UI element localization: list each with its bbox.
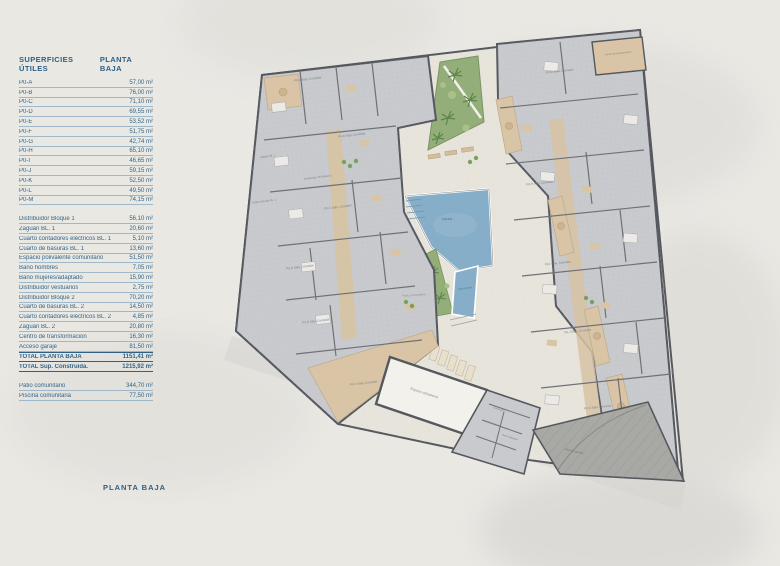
table-row: Patio comunitario344,70 m² [19,381,153,391]
transformer-room [592,37,646,75]
row-value: 14,50 m² [125,304,153,311]
row-value: 70,20 m² [125,295,153,302]
row-value: 65,10 m² [125,148,153,155]
table-row: Centro de transformación16,30 m² [19,332,153,342]
row-value: 344,70 m² [122,383,153,390]
table-row: Cuarto contadores eléctricos BL. 15,10 m… [19,234,153,244]
table-row: TOTAL Sup. Construida.1215,92 m² [19,362,153,372]
row-label: Centro de transformación [19,334,87,341]
row-value: 1215,92 m² [118,364,153,371]
row-value: 42,74 m² [125,139,153,146]
row-label: TOTAL Sup. Construida. [19,364,88,371]
row-label: Zaguán BL. 1 [19,226,55,233]
row-value: 74,15 m² [125,197,153,204]
row-value: 59,15 m² [125,168,153,175]
table-row: P0-M74,15 m² [19,196,153,206]
row-label: Cuarto contadores eléctricos BL. 1 [19,236,111,243]
row-label: Patio comunitario [19,383,65,390]
row-label: Distribuidor vestuarios [19,285,78,292]
row-value: 1151,41 m² [119,354,153,361]
row-value: 57,00 m² [125,80,153,87]
row-value: 46,65 m² [125,158,153,165]
row-label: P0-I [19,158,30,165]
surface-table-panel: SUPERFICIES ÚTILES PLANTA BAJA P0-A57,00… [19,55,153,401]
table-row: Acceso garaje81,50 m² [19,342,153,352]
table-row: Zaguán BL. 120,60 m² [19,224,153,234]
row-label: P0-A [19,80,32,87]
row-value: 15,90 m² [125,275,153,282]
row-label: TOTAL PLANTA BAJA [19,354,82,361]
table-row: Distribuidor Bloque 156,10 m² [19,214,153,224]
row-value: 5,10 m² [129,236,153,243]
plan-label: Piscina [442,217,453,222]
unit-rows-section: P0-A57,00 m²P0-B76,00 m²P0-C71,10 m²P0-D… [19,78,153,205]
plan-sheet: P0-A Sala. ComedorP0-B Sala. ComedorP0-C… [0,0,780,566]
row-value: 49,50 m² [125,188,153,195]
row-label: P0-D [19,109,33,116]
table-row: P0-E53,52 m² [19,117,153,127]
row-value: 81,50 m² [125,344,153,351]
extra-rows-section: Patio comunitario344,70 m²Piscina comuni… [19,381,153,401]
table-row: Distribuidor Bloque 270,20 m² [19,293,153,303]
row-label: Espacio polivalente comunitario [19,255,103,262]
common-rows-section: Distribuidor Bloque 156,10 m²Zaguán BL. … [19,214,153,351]
table-row: Cuarto de basuras BL. 214,50 m² [19,303,153,313]
table-row: P0-B76,00 m² [19,88,153,98]
row-value: 52,50 m² [125,178,153,185]
row-label: Zaguán BL. 2 [19,324,55,331]
row-label: Acceso garaje [19,344,57,351]
row-label: P0-L [19,188,32,195]
row-label: P0-H [19,148,33,155]
table-row: P0-G42,74 m² [19,137,153,147]
row-value: 77,50 m² [125,393,153,400]
row-label: P0-C [19,99,33,106]
row-label: P0-E [19,119,32,126]
row-label: P0-J [19,168,31,175]
row-value: 13,60 m² [125,246,153,253]
row-value: 4,85 m² [129,314,153,321]
table-row: P0-C71,10 m² [19,98,153,108]
sheet-title: PLANTA BAJA [103,483,166,492]
table-row: P0-I46,65 m² [19,156,153,166]
row-value: 7,05 m² [129,265,153,272]
row-value: 20,80 m² [125,324,153,331]
table-row: Cuarto contadores eléctricos BL. 24,85 m… [19,312,153,322]
table-header: SUPERFICIES ÚTILES PLANTA BAJA [19,55,153,73]
total-rows-section: TOTAL PLANTA BAJA1151,41 m²TOTAL Sup. Co… [19,352,153,373]
row-label: P0-F [19,129,32,136]
row-value: 16,30 m² [125,334,153,341]
row-value: 51,75 m² [125,129,153,136]
row-value: 76,00 m² [125,90,153,97]
table-row: TOTAL PLANTA BAJA1151,41 m² [19,352,153,363]
table-row: Cuarto de basuras BL. 113,60 m² [19,244,153,254]
row-value: 2,75 m² [129,285,153,292]
table-row: Baño mujeres/adaptado15,90 m² [19,273,153,283]
row-label: Baño mujeres/adaptado [19,275,83,282]
row-value: 20,60 m² [125,226,153,233]
row-value: 51,50 m² [125,255,153,262]
table-row: P0-L49,50 m² [19,186,153,196]
row-label: Cuarto de basuras BL. 1 [19,246,84,253]
row-label: Cuarto contadores eléctricos BL. 2 [19,314,111,321]
row-value: 71,10 m² [125,99,153,106]
table-row: P0-D69,55 m² [19,107,153,117]
table-header-left: SUPERFICIES ÚTILES [19,55,100,73]
row-label: Distribuidor Bloque 1 [19,216,75,223]
table-row: Piscina comunitaria77,50 m² [19,391,153,401]
row-label: P0-G [19,139,33,146]
row-label: Baño hombres [19,265,58,272]
table-row: P0-K52,50 m² [19,176,153,186]
table-row: Baño hombres7,05 m² [19,263,153,273]
row-label: P0-K [19,178,32,185]
row-label: P0-B [19,90,32,97]
table-row: Espacio polivalente comunitario51,50 m² [19,254,153,264]
row-value: 69,55 m² [125,109,153,116]
table-row: P0-J59,15 m² [19,166,153,176]
table-row: Zaguán BL. 220,80 m² [19,322,153,332]
table-header-right: PLANTA BAJA [100,55,153,73]
row-value: 56,10 m² [125,216,153,223]
table-row: P0-A57,00 m² [19,78,153,88]
table-row: P0-H65,10 m² [19,147,153,157]
row-label: Distribuidor Bloque 2 [19,295,75,302]
row-label: P0-M [19,197,33,204]
row-label: Cuarto de basuras BL. 2 [19,304,84,311]
table-row: P0-F51,75 m² [19,127,153,137]
row-value: 53,52 m² [125,119,153,126]
row-label: Piscina comunitaria [19,393,71,400]
table-row: Distribuidor vestuarios2,75 m² [19,283,153,293]
